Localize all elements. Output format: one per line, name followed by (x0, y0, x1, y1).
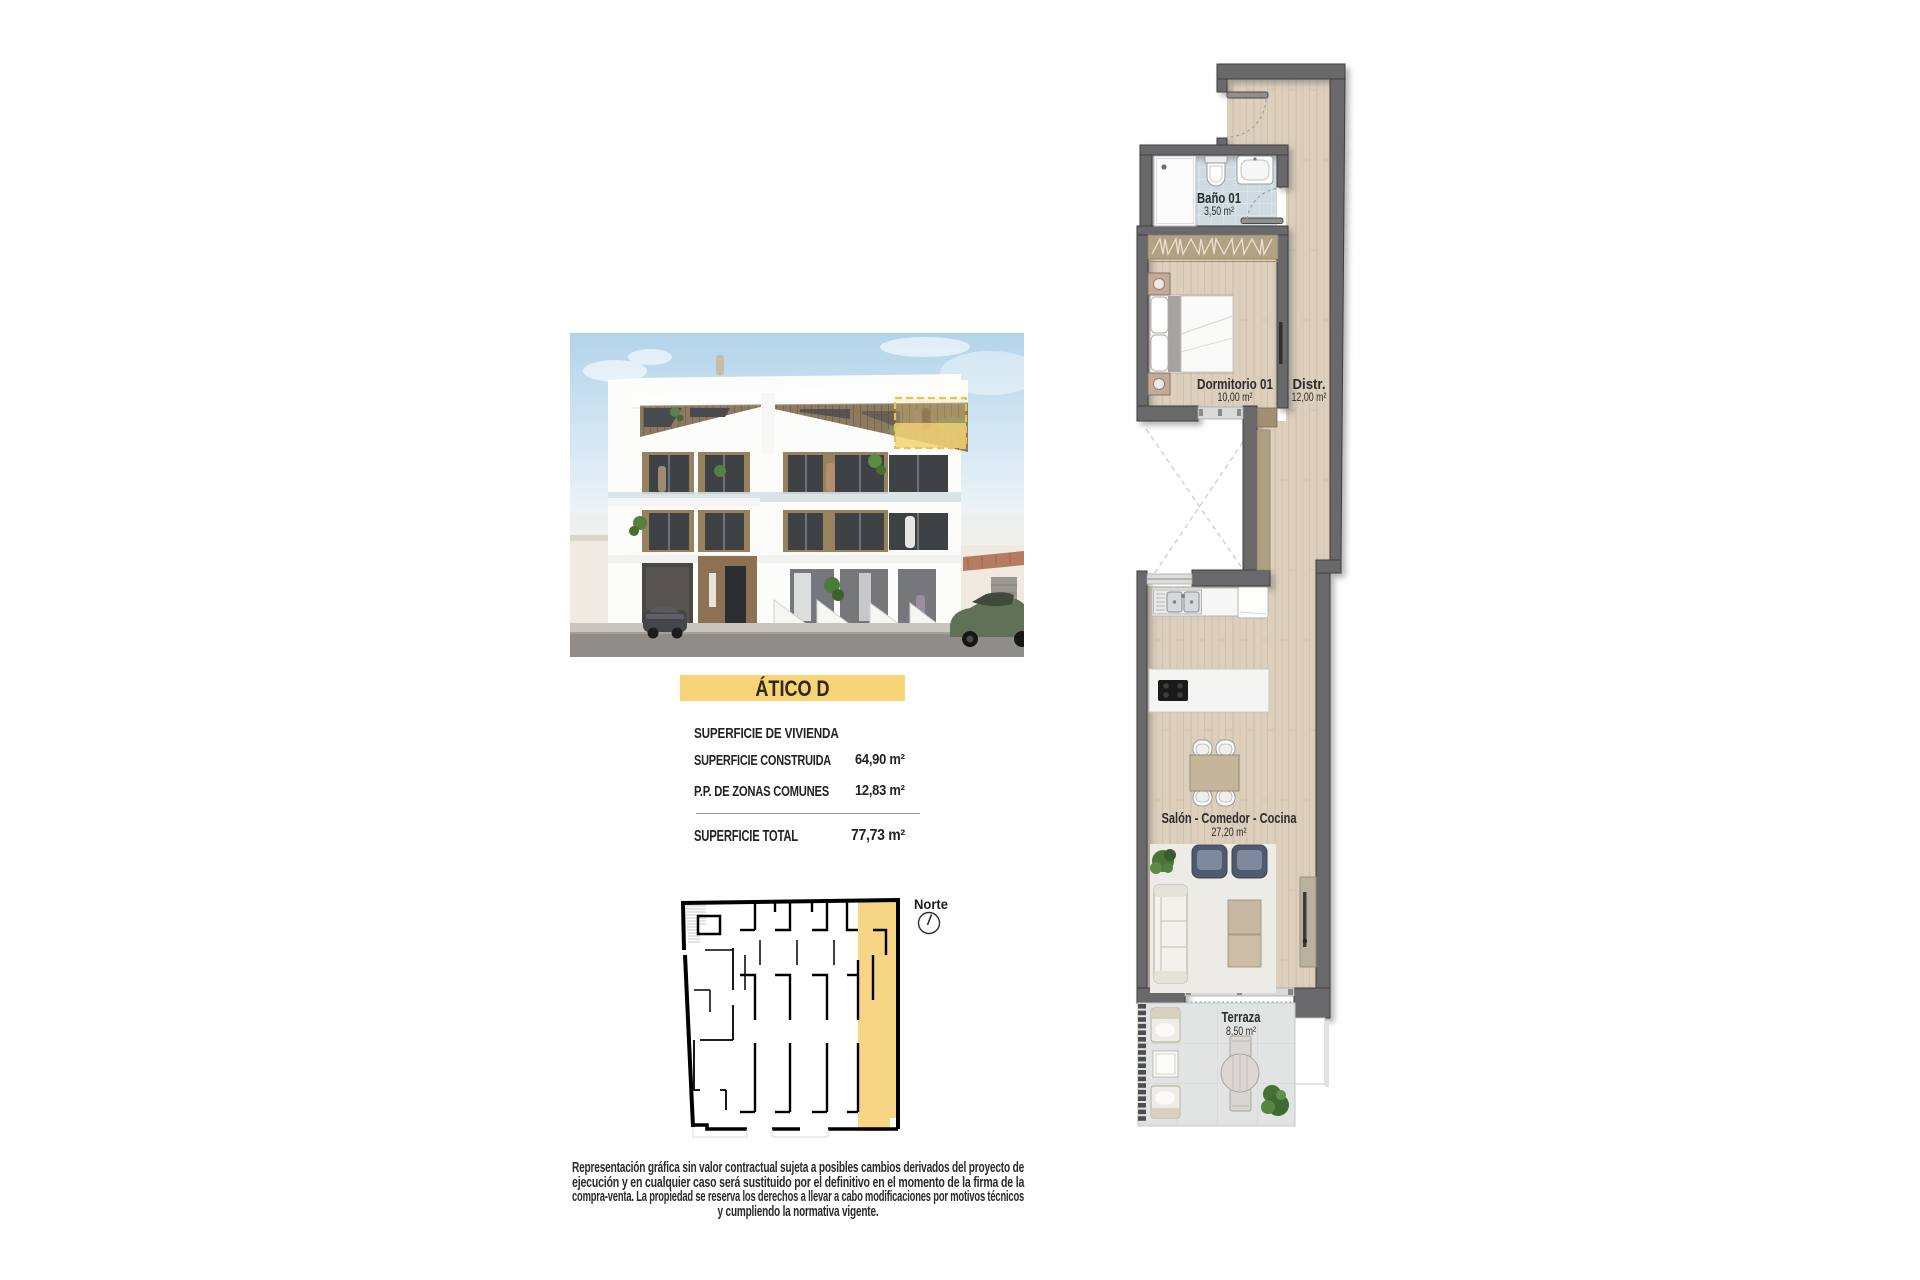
svg-text:3,50 m²: 3,50 m² (1204, 204, 1234, 218)
svg-text:27,20 m²: 27,20 m² (1212, 825, 1247, 839)
svg-text:12,00 m²: 12,00 m² (1292, 390, 1327, 404)
svg-text:Norte: Norte (914, 896, 948, 912)
svg-text:10,00 m²: 10,00 m² (1218, 390, 1253, 404)
